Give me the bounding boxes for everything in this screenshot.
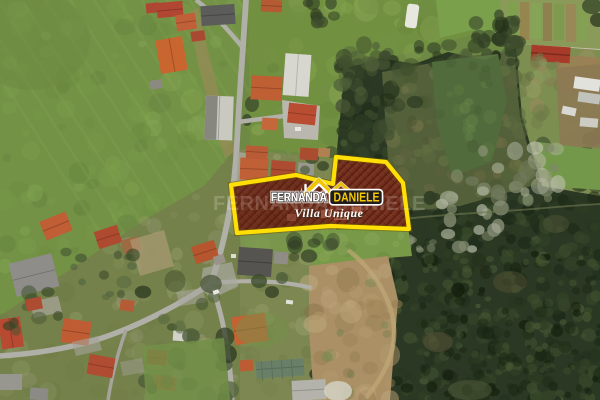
svg-text:DANIELE: DANIELE [334, 190, 380, 205]
svg-text:FERNANDA: FERNANDA [271, 190, 327, 205]
svg-text:Villa Unique: Villa Unique [294, 206, 363, 220]
